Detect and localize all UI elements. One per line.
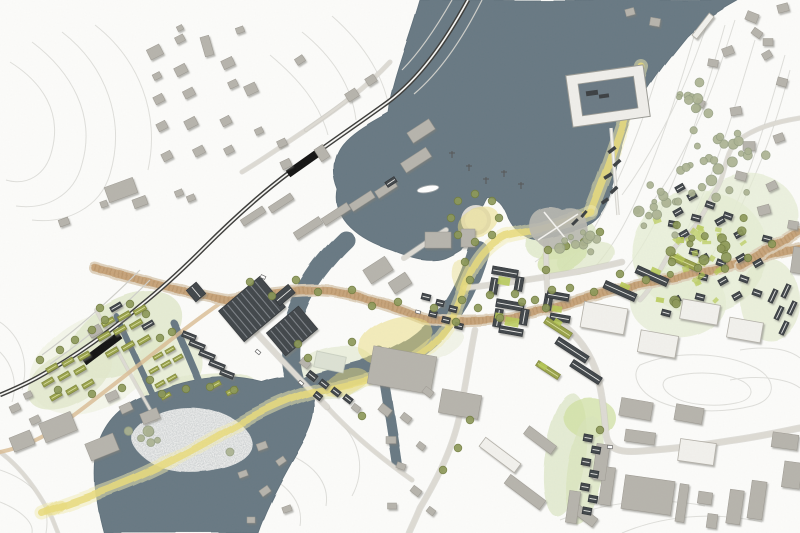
- tree: [461, 258, 469, 266]
- tree: [734, 137, 743, 146]
- building-new-dark: [581, 458, 591, 466]
- tree: [580, 230, 585, 235]
- tree: [454, 197, 462, 205]
- tree: [657, 188, 664, 195]
- building-existing: [707, 59, 718, 68]
- tree: [471, 238, 479, 246]
- tree: [348, 338, 356, 346]
- tree: [544, 246, 552, 254]
- tree: [684, 96, 693, 105]
- tree: [710, 157, 718, 165]
- tree: [294, 340, 302, 348]
- building-existing: [787, 220, 798, 230]
- tree: [88, 326, 96, 334]
- tree: [458, 296, 466, 304]
- building-new-dark: [583, 434, 593, 442]
- tree: [101, 316, 109, 324]
- tree: [641, 223, 647, 229]
- masterplan-canvas: [0, 0, 800, 533]
- tree: [518, 298, 526, 306]
- tree: [633, 206, 644, 217]
- building-existing: [787, 220, 798, 230]
- tree: [206, 383, 214, 391]
- tree: [88, 390, 96, 398]
- tree: [126, 300, 134, 308]
- tree: [694, 264, 702, 272]
- tree: [394, 298, 402, 306]
- building-existing: [621, 475, 675, 516]
- tree: [146, 376, 154, 384]
- building-existing: [621, 475, 675, 516]
- tree: [142, 310, 150, 318]
- tree: [674, 198, 681, 205]
- tree: [699, 255, 709, 265]
- tree: [596, 426, 604, 434]
- tree: [721, 265, 729, 273]
- tree: [118, 384, 126, 392]
- tree: [562, 238, 568, 244]
- tree: [694, 143, 700, 149]
- tree: [701, 233, 708, 240]
- tree: [645, 212, 652, 219]
- building-existing: [649, 17, 660, 27]
- tree: [734, 130, 741, 137]
- building-existing: [730, 106, 742, 116]
- tree: [768, 240, 776, 248]
- building-new-dark: [589, 470, 599, 478]
- tree: [96, 304, 104, 312]
- tree: [230, 386, 238, 394]
- tree: [585, 231, 595, 241]
- building-existing: [247, 517, 255, 523]
- building-existing: [697, 491, 713, 505]
- tree: [268, 292, 276, 300]
- tree: [143, 426, 154, 437]
- tree: [430, 304, 438, 312]
- tree: [511, 290, 519, 298]
- tree: [314, 288, 322, 296]
- tree: [358, 412, 366, 420]
- tree: [712, 193, 721, 202]
- building-outline: [678, 439, 717, 466]
- tree: [695, 78, 704, 87]
- tree: [548, 286, 556, 294]
- tree: [672, 300, 680, 308]
- building-existing: [247, 517, 255, 523]
- tree: [726, 187, 733, 194]
- tree: [147, 439, 155, 447]
- tree: [156, 334, 164, 342]
- tree: [447, 214, 455, 222]
- tree: [744, 189, 750, 195]
- tree: [642, 276, 650, 284]
- building-outline: [678, 439, 717, 466]
- building-existing: [707, 59, 718, 68]
- tree: [495, 214, 503, 222]
- tree: [555, 243, 565, 253]
- tree: [652, 210, 661, 219]
- building-existing: [706, 513, 718, 528]
- tree: [226, 448, 234, 456]
- tree: [138, 435, 145, 442]
- tree: [691, 104, 700, 113]
- tree: [486, 291, 494, 299]
- tree: [738, 151, 744, 157]
- tree: [471, 190, 479, 198]
- building-existing: [386, 437, 396, 444]
- tree: [666, 247, 675, 256]
- building-existing: [425, 232, 451, 248]
- tree: [182, 385, 190, 393]
- tree: [716, 133, 724, 141]
- tree: [124, 427, 132, 435]
- building-existing: [649, 17, 660, 27]
- tree: [488, 231, 496, 239]
- tree: [692, 94, 702, 104]
- tree: [745, 148, 752, 155]
- building-existing: [706, 513, 718, 528]
- building-new-dark: [591, 446, 601, 454]
- tree: [689, 235, 695, 241]
- tree: [496, 314, 504, 322]
- masterplan-map: [0, 0, 800, 533]
- car: [607, 445, 612, 448]
- tree: [721, 252, 731, 262]
- tree: [590, 288, 598, 296]
- tree: [738, 227, 747, 236]
- tree: [568, 234, 573, 239]
- tree: [673, 221, 680, 228]
- building-new-dark: [588, 495, 598, 503]
- tree: [439, 466, 447, 474]
- tree: [668, 258, 676, 266]
- tree: [531, 296, 539, 304]
- tree: [704, 109, 713, 118]
- tree: [246, 278, 254, 286]
- tree: [566, 284, 574, 292]
- tree: [304, 354, 312, 362]
- tree: [36, 356, 44, 364]
- tree: [682, 163, 690, 171]
- tree: [542, 266, 550, 274]
- tree: [71, 336, 79, 344]
- tree: [744, 254, 752, 262]
- building-existing: [697, 491, 713, 505]
- tree: [650, 203, 658, 211]
- tree: [571, 240, 579, 248]
- building-existing: [781, 461, 800, 489]
- building-existing: [763, 39, 773, 46]
- tree: [154, 437, 160, 443]
- building-existing: [763, 39, 773, 46]
- tree: [647, 182, 654, 189]
- tree: [676, 94, 681, 99]
- tree: [348, 286, 356, 294]
- tree: [454, 444, 462, 452]
- tree: [667, 271, 673, 277]
- tree: [761, 151, 770, 160]
- tree: [368, 302, 376, 310]
- tree: [158, 390, 166, 398]
- tree: [474, 304, 482, 312]
- building-new-dark: [580, 483, 590, 491]
- tree: [717, 245, 725, 253]
- tree: [672, 232, 678, 238]
- building-existing: [388, 503, 397, 509]
- building-existing: [388, 503, 397, 509]
- tree: [690, 127, 697, 134]
- tree: [706, 175, 717, 186]
- tree: [54, 386, 62, 394]
- tree: [452, 318, 460, 326]
- tree: [466, 416, 474, 424]
- tree: [292, 276, 300, 284]
- building-existing: [386, 437, 396, 444]
- tree: [542, 304, 550, 312]
- tree: [454, 231, 462, 239]
- tree: [698, 183, 706, 191]
- tree: [740, 214, 747, 221]
- tree: [466, 276, 474, 284]
- building-existing: [425, 232, 451, 248]
- building-existing: [781, 461, 800, 489]
- tree: [713, 164, 724, 175]
- tree: [700, 157, 707, 164]
- tree: [689, 190, 696, 197]
- building-new-dark: [582, 507, 592, 515]
- tree: [488, 197, 496, 205]
- tree: [727, 157, 737, 167]
- tree: [168, 328, 176, 336]
- tree: [616, 270, 624, 278]
- tree: [588, 249, 594, 255]
- tree: [56, 346, 64, 354]
- building-existing: [730, 106, 742, 116]
